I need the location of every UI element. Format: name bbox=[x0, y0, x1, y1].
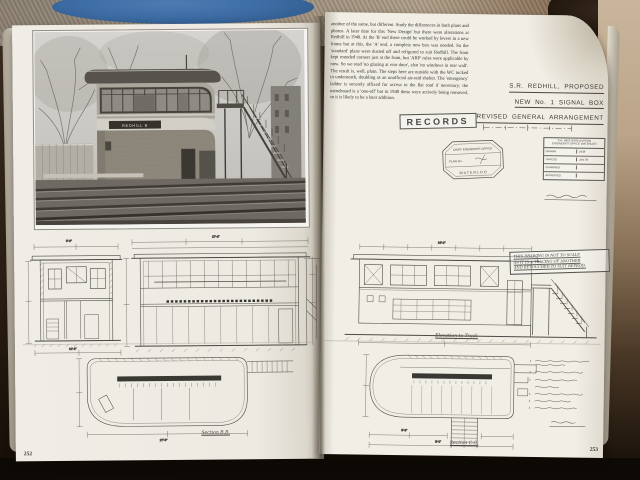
not-to-scale-note: THIS DRAWING IS NOT TO SCALE AS IT IS A … bbox=[509, 249, 610, 275]
left-page-number: 252 bbox=[24, 451, 32, 457]
door bbox=[181, 149, 195, 183]
photo-frame: REDHILL B bbox=[32, 28, 310, 230]
office-stamp: CHIEF ENGINEERS OFFICE PLAN No. WATERLOO bbox=[438, 137, 508, 184]
lever-frame-plan bbox=[412, 373, 492, 379]
right-page-number: 253 bbox=[590, 447, 598, 453]
note-line-3: AND RETOUCHED TO SUIT REPROD. bbox=[514, 264, 586, 271]
dim-label: 9'-6" bbox=[66, 239, 72, 243]
section-bb-label: Section B.B. bbox=[166, 430, 266, 436]
lever-frame-plan bbox=[117, 376, 221, 382]
dim-label: 34'-0" bbox=[438, 241, 446, 245]
book-gutter bbox=[312, 16, 328, 458]
title-block-table: S.R. WESTERN DIVISION ENGINEER'S OFFICE … bbox=[543, 137, 606, 181]
signal-box-photo: REDHILL B bbox=[34, 30, 306, 225]
office-stamp-line3: WATERLOO bbox=[459, 170, 487, 175]
dark-surface-bottom bbox=[0, 458, 640, 480]
office-stamp-line2: PLAN No. bbox=[449, 159, 463, 164]
nameboard-text: REDHILL B bbox=[122, 123, 148, 128]
dim-label: 8'-6" bbox=[401, 428, 407, 432]
signal-box: REDHILL B bbox=[84, 55, 221, 184]
handwritten-signature bbox=[542, 191, 602, 204]
body-paragraph: another of the same, but different. Stud… bbox=[330, 22, 469, 128]
railway-tracks bbox=[35, 172, 305, 225]
drawing-title: S.R. REDHILL, PROPOSED NEW No. 1 SIGNAL … bbox=[470, 76, 605, 124]
dim-label: 27'-6" bbox=[160, 438, 168, 442]
left-page-drawings: 9'-6" 12'-6" 27'-6" bbox=[20, 229, 322, 452]
dim-label: 27'-6" bbox=[212, 235, 220, 239]
left-page: REDHILL B bbox=[12, 23, 324, 462]
title-block-subheader: ENGINEER'S OFFICE WATERLOO bbox=[544, 143, 604, 147]
records-stamp: RECORDS bbox=[399, 113, 476, 130]
handwritten-notes bbox=[527, 356, 600, 433]
book-photograph-scene: REDHILL B bbox=[0, 0, 640, 480]
right-page: another of the same, but different. Stud… bbox=[319, 12, 609, 458]
understair-recess bbox=[199, 151, 215, 183]
scale-bar bbox=[481, 121, 573, 134]
dim-label: 12'-6" bbox=[69, 347, 77, 351]
table-row: APPROVED bbox=[544, 172, 604, 180]
window-sill bbox=[97, 115, 215, 116]
office-stamp-line1: CHIEF ENGINEERS OFFICE bbox=[453, 146, 492, 152]
